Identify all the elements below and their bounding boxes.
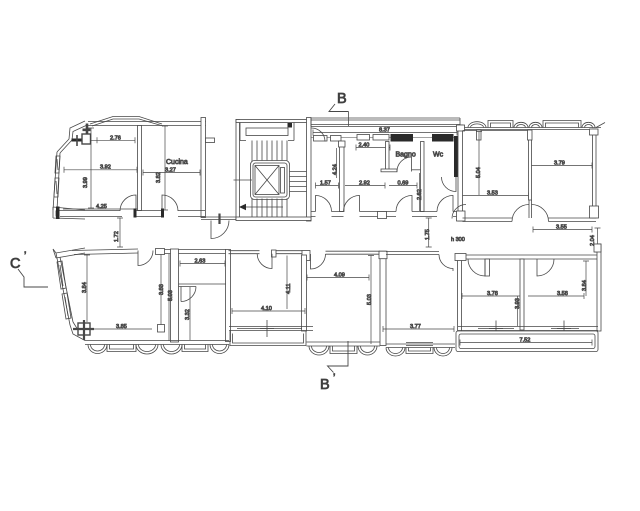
svg-text:3.78: 3.78 xyxy=(487,291,498,297)
svg-text:’: ’ xyxy=(24,250,26,262)
svg-text:Wc: Wc xyxy=(433,152,444,159)
svg-text:B: B xyxy=(320,377,330,393)
svg-text:3.79: 3.79 xyxy=(554,160,565,166)
svg-text:3.83: 3.83 xyxy=(159,284,165,295)
svg-text:’: ’ xyxy=(333,372,335,384)
svg-text:3.92: 3.92 xyxy=(100,164,111,170)
svg-text:2.62: 2.62 xyxy=(417,189,423,200)
svg-text:4.10: 4.10 xyxy=(261,306,272,312)
svg-text:3.84: 3.84 xyxy=(582,280,588,291)
svg-text:8.37: 8.37 xyxy=(379,127,390,133)
svg-text:4.25: 4.25 xyxy=(96,204,107,210)
svg-text:3.82: 3.82 xyxy=(156,172,162,183)
svg-text:2.40: 2.40 xyxy=(359,142,370,148)
svg-text:5.04: 5.04 xyxy=(476,167,482,178)
svg-text:5.03: 5.03 xyxy=(168,290,174,301)
svg-text:3.53: 3.53 xyxy=(487,190,498,196)
svg-text:4.09: 4.09 xyxy=(334,272,345,278)
svg-text:7.52: 7.52 xyxy=(520,337,531,343)
svg-text:3.55: 3.55 xyxy=(556,224,567,230)
svg-text:3.99: 3.99 xyxy=(83,177,89,188)
svg-text:3.77: 3.77 xyxy=(410,324,421,330)
svg-text:2.76: 2.76 xyxy=(110,135,121,141)
svg-text:Bagno: Bagno xyxy=(396,152,416,159)
svg-text:3.84: 3.84 xyxy=(82,282,88,293)
svg-text:3.85: 3.85 xyxy=(116,324,127,330)
svg-text:Cucina: Cucina xyxy=(166,159,188,166)
svg-text:4.11: 4.11 xyxy=(286,284,292,294)
svg-text:1.72: 1.72 xyxy=(114,231,120,242)
svg-text:B: B xyxy=(337,91,347,107)
svg-text:3.27: 3.27 xyxy=(165,167,176,173)
svg-text:3.32: 3.32 xyxy=(185,309,191,320)
svg-text:1.57: 1.57 xyxy=(320,180,331,186)
svg-text:3.58: 3.58 xyxy=(557,291,568,297)
svg-text:4.24: 4.24 xyxy=(333,164,339,175)
svg-text:5.03: 5.03 xyxy=(367,294,373,305)
svg-text:0.69: 0.69 xyxy=(398,180,409,186)
svg-text:3.93: 3.93 xyxy=(515,298,521,309)
svg-text:1.75: 1.75 xyxy=(425,229,431,240)
svg-text:2.63: 2.63 xyxy=(195,258,206,264)
svg-text:2.92: 2.92 xyxy=(359,180,370,186)
svg-text:h 300: h 300 xyxy=(451,237,465,243)
